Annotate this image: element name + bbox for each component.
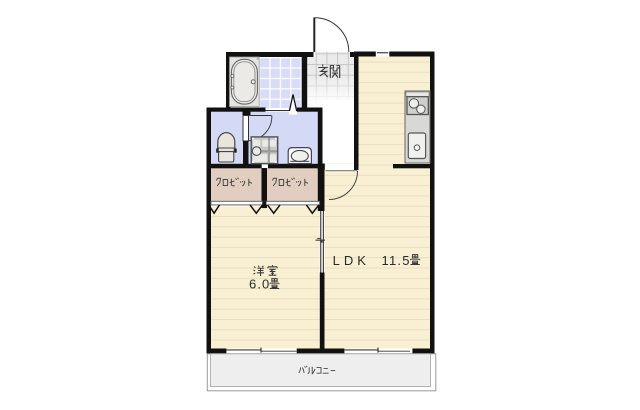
svg-text:11.5: 11.5 [382, 253, 411, 268]
svg-text:6.0: 6.0 [249, 276, 270, 291]
svg-text:LDK: LDK [333, 253, 370, 268]
